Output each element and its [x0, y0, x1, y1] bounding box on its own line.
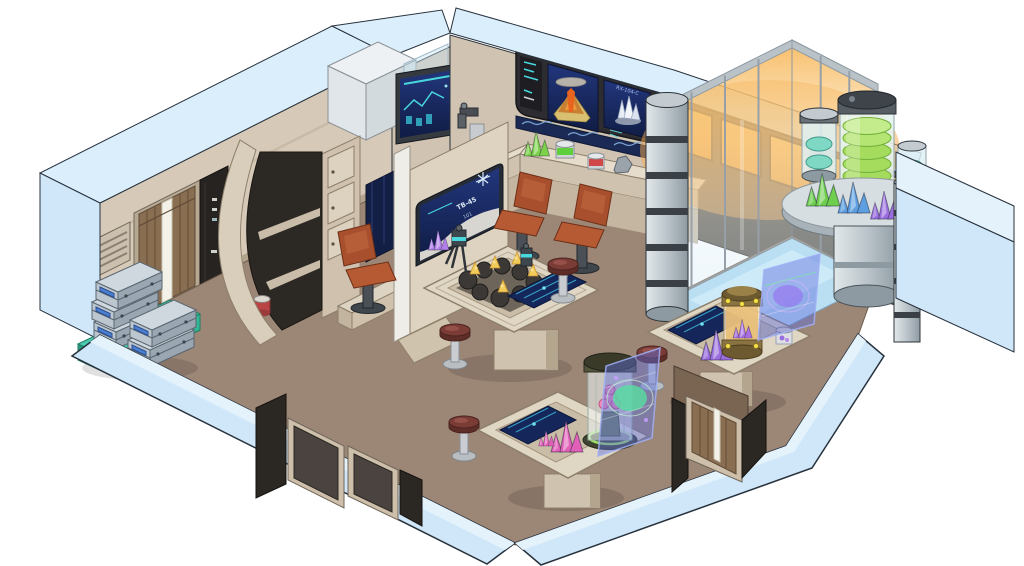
scene-canvas: RX-104-C [0, 0, 1024, 566]
red-sample-jar [588, 153, 604, 169]
sample-cylinder-left [800, 108, 838, 182]
tower-pedestal [834, 226, 900, 307]
green-sample-jar [556, 141, 574, 159]
wall-monitor [396, 64, 458, 144]
isometric-lab-illustration: RX-104-C [0, 0, 1024, 566]
segmented-pillar-left [646, 93, 688, 322]
containment-chamber-brass [722, 286, 762, 359]
